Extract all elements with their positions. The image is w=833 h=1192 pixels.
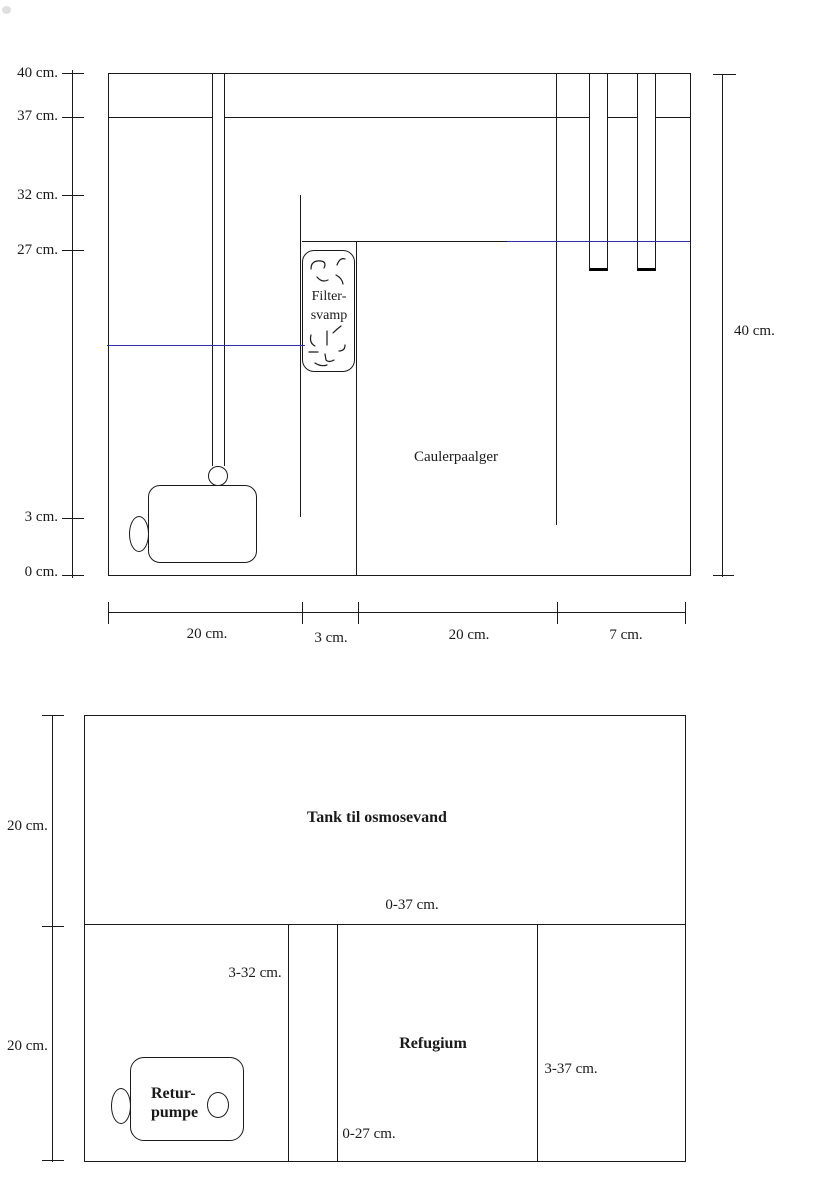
width-tick-1 (302, 602, 303, 624)
filter-sponge-label-line1: Filter- (306, 289, 352, 305)
side-tank-left-wall (108, 73, 109, 576)
height-label-37: 37 cm. (0, 108, 58, 124)
caulerpa-label: Caulerpaalger (414, 449, 498, 465)
tick-0cm (62, 575, 84, 576)
baffle-0-27 (356, 241, 357, 575)
osmosis-tank-label: Tank til osmosevand (307, 810, 447, 826)
plan-tank-right-wall (685, 715, 686, 1162)
depth-tick-top (42, 715, 64, 716)
tick-32cm (62, 195, 84, 196)
width-tick-0 (108, 602, 109, 624)
plan-pump-impeller (207, 1092, 229, 1118)
plan-tank-left-wall (84, 715, 85, 1162)
right-ruler-line (722, 74, 723, 577)
width-label-1: 20 cm. (187, 626, 228, 642)
return-pump-label-line1: Retur- (151, 1084, 196, 1103)
plan-pump-intake-knob (111, 1088, 131, 1124)
tick-37cm (62, 117, 84, 118)
baffle-3-32 (300, 195, 301, 517)
width-label-3: 20 cm. (449, 627, 490, 643)
height-ruler-line (72, 70, 73, 578)
depth-ruler-line (52, 715, 53, 1162)
refugium-label: Refugium (399, 1036, 467, 1052)
plan-baffle-3-37 (537, 924, 538, 1161)
water-level-left-chamber (107, 345, 305, 346)
plan-tank-top-edge (84, 715, 686, 716)
height-label-0: 0 cm. (0, 564, 58, 580)
range-label-3-32: 3-32 cm. (228, 965, 281, 981)
side-tank-right-wall (690, 73, 691, 576)
return-pump-label-line2: pumpe (151, 1103, 198, 1122)
osmosis-divider-0-37 (84, 924, 686, 925)
scan-smudge (2, 6, 11, 14)
width-label-4: 7 cm. (609, 627, 642, 643)
width-label-2: 3 cm. (314, 630, 347, 646)
plan-baffle-3-32 (288, 924, 289, 1161)
right-ruler-bottom-tick (713, 575, 734, 576)
pump-outlet-fitting (208, 466, 228, 486)
pump-body (148, 485, 257, 563)
right-height-label: 40 cm. (734, 323, 775, 339)
depth-label-upper: 20 cm. (7, 818, 48, 834)
depth-tick-bottom (42, 1160, 64, 1161)
return-pipe (212, 74, 225, 466)
water-level-right-chamber (507, 241, 690, 242)
depth-tick-middle (42, 926, 64, 927)
height-label-40: 40 cm. (0, 65, 58, 81)
height-label-32: 32 cm. (0, 187, 58, 203)
sump-diagram: Filter- svamp Caulerpaalger 40 cm. 37 cm… (0, 0, 833, 1192)
width-tick-2 (358, 602, 359, 624)
pump-intake-knob (129, 516, 149, 552)
filter-sponge-label-line2: svamp (306, 308, 352, 324)
baffle-3-37 (556, 73, 557, 525)
tick-3cm (62, 518, 84, 519)
width-ruler-line (108, 612, 685, 613)
shelf-27cm-line (302, 241, 514, 242)
tick-40cm (62, 73, 84, 74)
plan-baffle-0-27 (337, 924, 338, 1161)
depth-label-lower: 20 cm. (7, 1038, 48, 1054)
range-label-0-27: 0-27 cm. (342, 1126, 395, 1142)
side-tank-bottom-edge (108, 575, 691, 576)
range-label-0-37: 0-37 cm. (385, 897, 438, 913)
filter-sponge: Filter- svamp (302, 250, 355, 372)
plan-tank-bottom-edge (84, 1161, 686, 1162)
width-tick-3 (557, 602, 558, 624)
width-tick-4 (685, 602, 686, 624)
height-label-27: 27 cm. (0, 242, 58, 258)
plan-pump-body: Retur- pumpe (130, 1057, 244, 1141)
range-label-3-37: 3-37 cm. (544, 1061, 597, 1077)
right-ruler-top-tick (713, 74, 736, 75)
tick-27cm (62, 250, 84, 251)
height-label-3: 3 cm. (0, 509, 58, 525)
